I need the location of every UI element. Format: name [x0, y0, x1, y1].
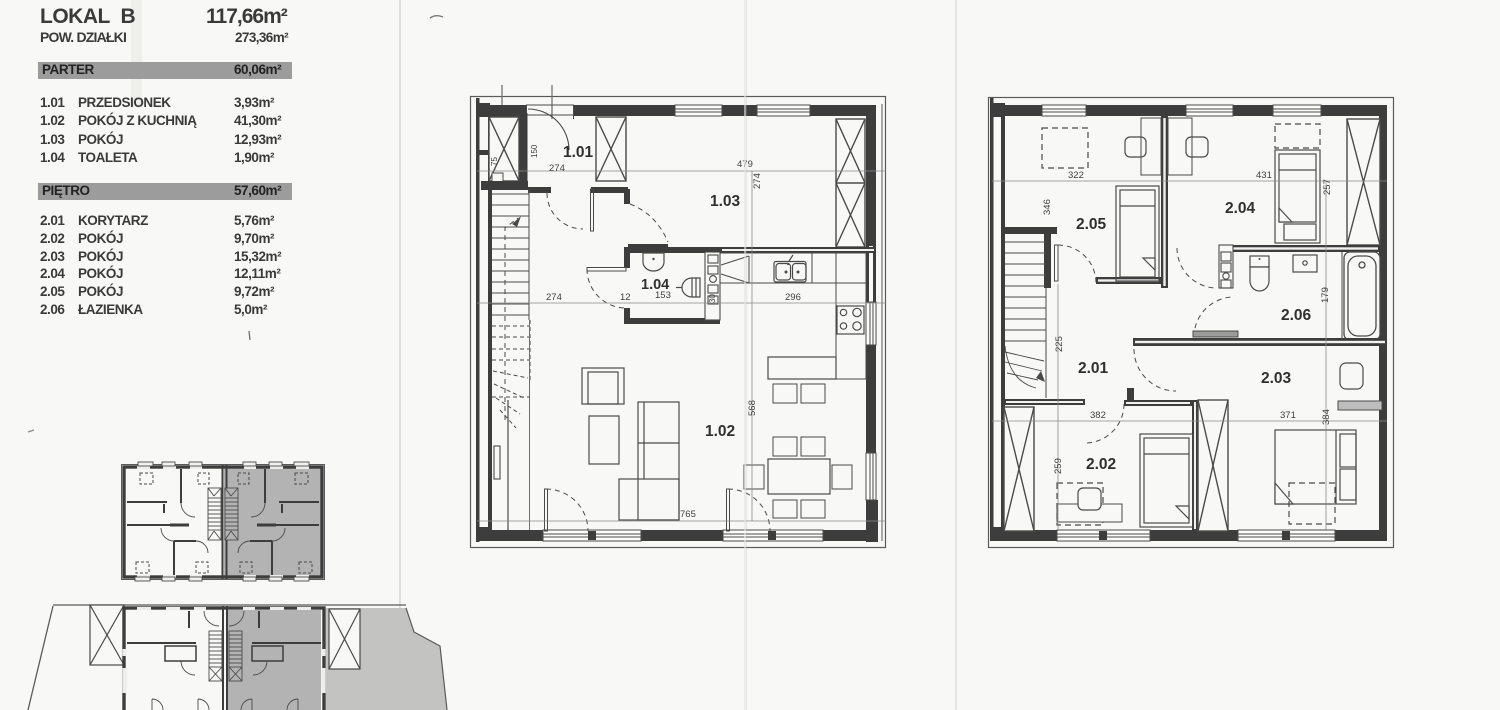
svg-text:296: 296: [785, 292, 801, 303]
svg-text:2.02: 2.02: [1086, 456, 1116, 473]
svg-text:431: 431: [1256, 170, 1272, 181]
svg-text:371: 371: [1280, 410, 1296, 421]
svg-text:30: 30: [708, 294, 717, 303]
svg-text:2.03: 2.03: [1261, 370, 1292, 387]
svg-text:259: 259: [1053, 458, 1064, 474]
svg-text:765: 765: [680, 509, 696, 520]
svg-text:1.02: 1.02: [705, 423, 735, 440]
svg-text:382: 382: [1090, 410, 1106, 421]
svg-text:274: 274: [752, 173, 763, 189]
svg-text:479: 479: [737, 159, 753, 170]
svg-text:1.04: 1.04: [641, 277, 669, 293]
svg-text:2.01: 2.01: [1078, 360, 1109, 377]
svg-text:2.06: 2.06: [1281, 307, 1312, 324]
svg-text:384: 384: [1321, 409, 1332, 425]
svg-text:274: 274: [546, 292, 562, 303]
svg-text:2.04: 2.04: [1225, 200, 1256, 217]
svg-text:12: 12: [620, 292, 631, 303]
svg-text:75: 75: [490, 157, 499, 166]
svg-text:346: 346: [1042, 199, 1053, 215]
svg-text:1.01: 1.01: [563, 144, 594, 161]
svg-text:1.03: 1.03: [710, 193, 741, 210]
svg-text:225: 225: [1054, 336, 1065, 352]
svg-text:322: 322: [1068, 170, 1084, 181]
svg-text:274: 274: [549, 163, 565, 174]
svg-text:568: 568: [747, 400, 758, 416]
svg-text:257: 257: [1322, 179, 1333, 195]
svg-text:2.05: 2.05: [1076, 216, 1107, 233]
svg-text:150: 150: [530, 144, 539, 158]
svg-text:179: 179: [1320, 287, 1331, 303]
